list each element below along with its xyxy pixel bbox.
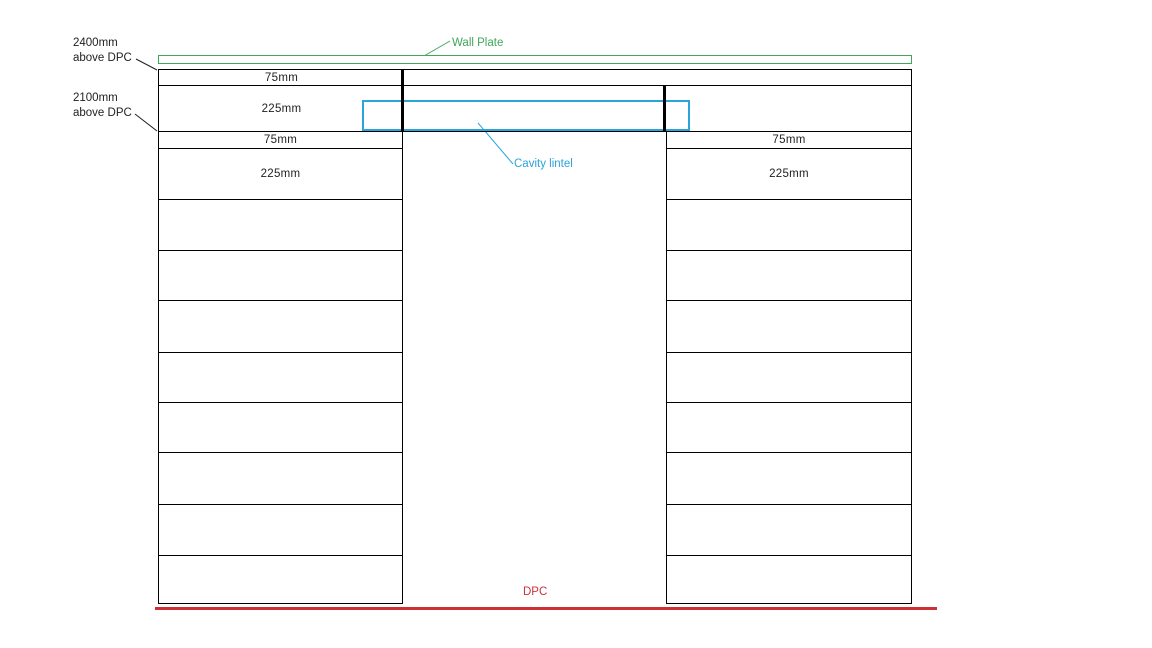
course-dimension-label: 225mm	[667, 168, 911, 180]
brick-course	[158, 403, 403, 453]
dimension-label-2100: 2100mm above DPC	[73, 91, 132, 121]
dpc-line	[155, 607, 937, 610]
wall-elevation-diagram: 75mm225mm 75mm225mm 75mm225mm 2400mm abo…	[0, 0, 1152, 648]
brick-course	[666, 403, 912, 453]
brick-course	[158, 453, 403, 505]
dim-2100-leader-line	[135, 114, 157, 131]
dimension-label-2400-line2: above DPC	[73, 51, 132, 66]
dpc-label: DPC	[523, 585, 547, 600]
right-jamb-line	[663, 86, 666, 132]
left-jamb-line	[401, 69, 404, 132]
brick-course	[666, 301, 912, 353]
brick-course	[666, 353, 912, 403]
brick-course: 225mm	[158, 149, 403, 200]
cavity-lintel-label: Cavity lintel	[514, 157, 573, 172]
wall-plate-label: Wall Plate	[452, 36, 503, 51]
brick-course	[666, 453, 912, 505]
course-dimension-label: 75mm	[159, 134, 402, 146]
brick-course	[666, 200, 912, 251]
dimension-label-2400: 2400mm above DPC	[73, 36, 132, 66]
brick-course	[666, 505, 912, 556]
brick-course	[158, 200, 403, 251]
dimension-label-2100-line2: above DPC	[73, 106, 132, 121]
brick-course	[158, 556, 403, 604]
brick-course	[666, 251, 912, 301]
brick-course	[158, 353, 403, 403]
brick-course: 75mm	[666, 132, 912, 149]
brick-course	[158, 505, 403, 556]
course-dimension-label: 75mm	[159, 72, 404, 84]
brick-course	[158, 301, 403, 353]
course-dimension-label: 75mm	[667, 134, 911, 146]
brick-course	[158, 251, 403, 301]
course-dimension-label: 225mm	[159, 168, 402, 180]
cavity-lintel-rect	[362, 100, 690, 131]
dim-2400-leader-line	[136, 59, 157, 70]
dimension-label-2100-line1: 2100mm	[73, 91, 132, 106]
dimension-label-2400-line1: 2400mm	[73, 36, 132, 51]
brick-course: 75mm	[158, 69, 912, 86]
brick-course: 75mm	[158, 132, 403, 149]
wall-plate-rect	[158, 55, 912, 64]
brick-course: 225mm	[666, 149, 912, 200]
brick-course	[666, 556, 912, 604]
